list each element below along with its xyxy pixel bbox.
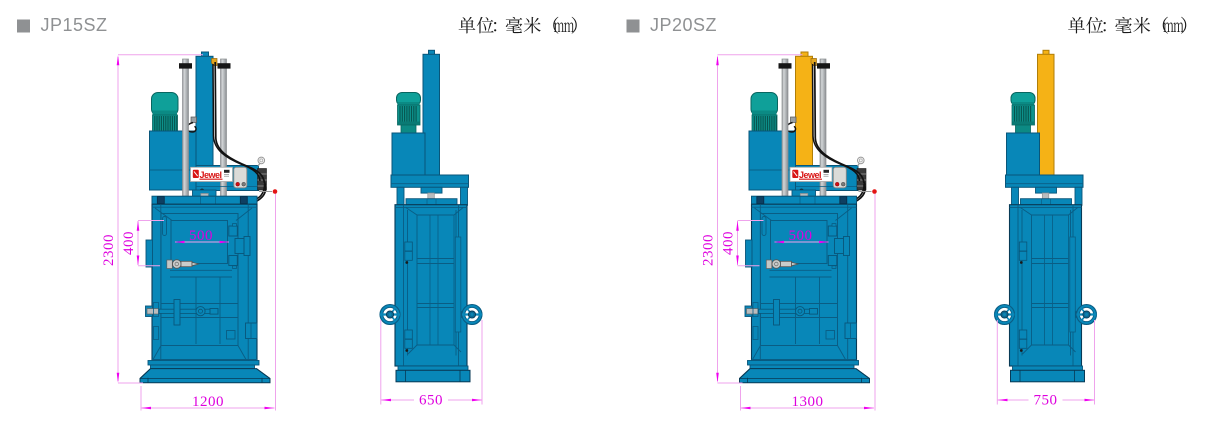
svg-text:JP15SZ: JP15SZ: [41, 15, 108, 35]
svg-text:750: 750: [1034, 393, 1058, 409]
svg-text:500: 500: [189, 228, 213, 244]
svg-text:JP20SZ: JP20SZ: [650, 15, 717, 35]
svg-text:500: 500: [789, 228, 813, 244]
svg-text:2300: 2300: [101, 234, 117, 266]
svg-text:400: 400: [121, 231, 137, 255]
svg-text:650: 650: [419, 393, 443, 409]
svg-text:1200: 1200: [192, 394, 224, 410]
svg-text:1300: 1300: [792, 394, 824, 410]
svg-text:400: 400: [721, 231, 737, 255]
svg-text:2300: 2300: [701, 234, 717, 266]
